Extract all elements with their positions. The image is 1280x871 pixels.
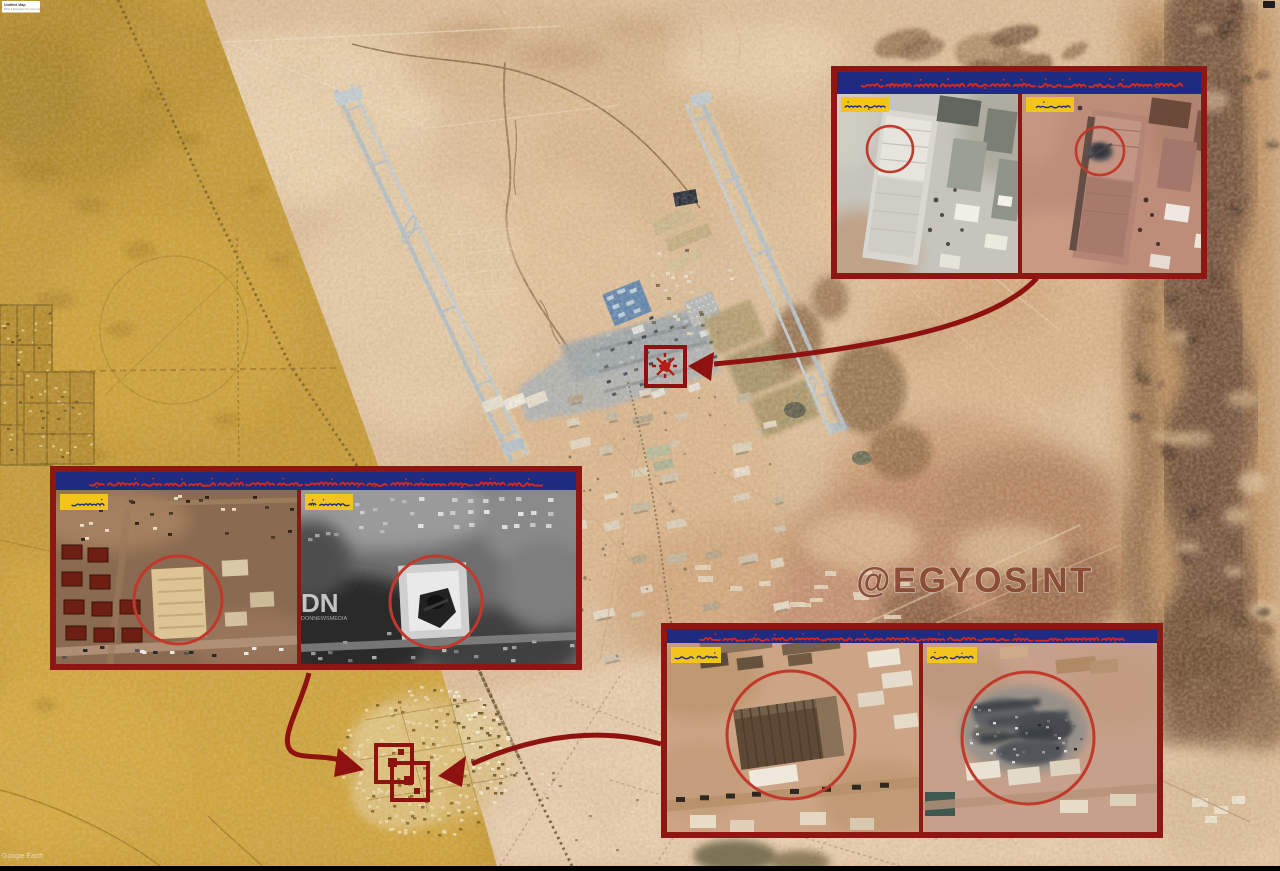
svg-text:DN: DN — [301, 588, 339, 618]
svg-text:Untitled Map: Untitled Map — [4, 3, 26, 7]
svg-text:Google Earth: Google Earth — [2, 853, 43, 860]
svg-text:Write a description for your m: Write a description for your map. — [4, 7, 42, 11]
svg-text:@EGYOSINT: @EGYOSINT — [856, 561, 1094, 600]
svg-text:DONNEWSMEDIA: DONNEWSMEDIA — [301, 616, 347, 622]
